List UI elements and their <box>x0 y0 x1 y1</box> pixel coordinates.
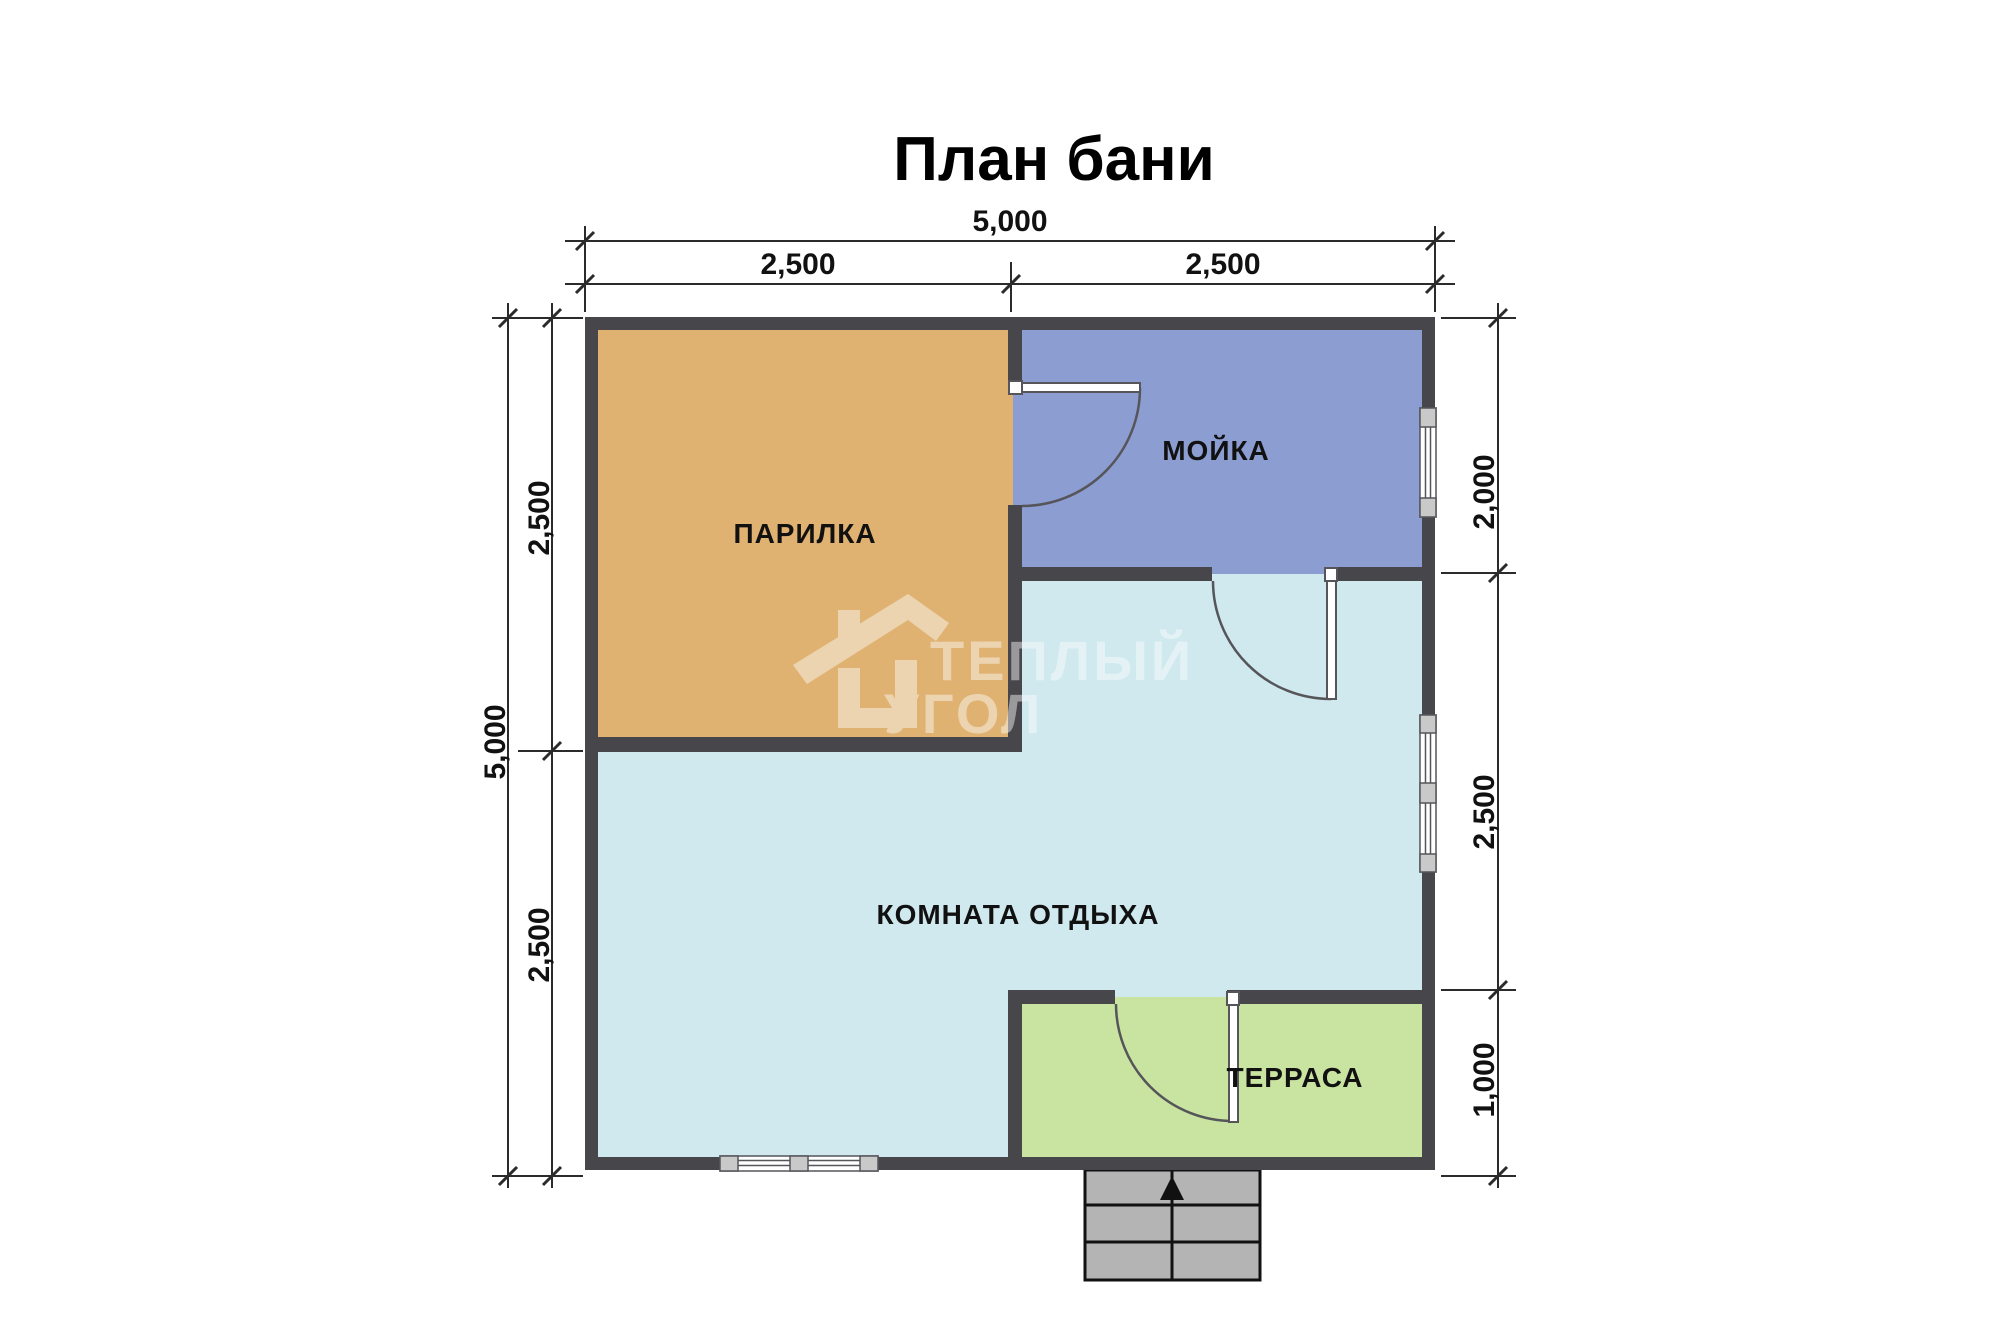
wall-moyka-bottom-right <box>1325 567 1422 581</box>
dim-label-top-total: 5,000 <box>972 205 1047 238</box>
door-frame <box>1227 992 1239 1005</box>
window-frame-block <box>1420 498 1436 517</box>
dim-label-right-upper: 2,000 <box>1468 454 1501 529</box>
room-label-komnata: КОМНАТА ОТДЫХА <box>876 899 1159 930</box>
wall-outer-top <box>585 317 1435 330</box>
door-frame <box>1325 568 1337 581</box>
wall-parilka-moyka-upper <box>1008 330 1022 382</box>
window-frame-block <box>720 1156 738 1171</box>
watermark-chimney <box>838 610 860 650</box>
room-label-terrasa: ТЕРРАСА <box>1227 1062 1364 1093</box>
wall-outer-bottom <box>585 1157 1435 1170</box>
wall-terrasa-top-left <box>1008 990 1115 1004</box>
dim-label-top-right: 2,500 <box>1185 248 1260 281</box>
dim-label-left-upper: 2,500 <box>523 480 556 555</box>
window-moyka-right <box>1420 408 1436 517</box>
dim-label-right-lower: 1,000 <box>1468 1042 1501 1117</box>
watermark-text-line2: УГОЛ <box>884 682 1043 745</box>
dim-label-left-total: 5,000 <box>479 704 512 779</box>
dim-label-left-lower: 2,500 <box>523 907 556 982</box>
wall-terrasa-left <box>1008 990 1022 1157</box>
wall-terrasa-top-right <box>1227 990 1422 1004</box>
entry-stairs <box>1085 1170 1260 1280</box>
floor-plan-drawing: План бани <box>0 0 2000 1333</box>
window-frame-block <box>1420 408 1436 427</box>
window-frame-block <box>1420 715 1436 733</box>
window-frame-block <box>1420 783 1436 803</box>
floor-plan-page: План бани <box>0 0 2000 1333</box>
door-frame <box>1009 381 1022 394</box>
window-frame-block <box>860 1156 878 1171</box>
page-title: План бани <box>893 125 1214 194</box>
window-frame-block <box>790 1156 808 1171</box>
room-label-moyka: МОЙКА <box>1162 434 1270 466</box>
wall-outer-left <box>585 317 598 1170</box>
window-frame-block <box>1420 854 1436 872</box>
wall-moyka-bottom-left <box>1008 567 1212 581</box>
window-komnata-right <box>1420 715 1436 872</box>
dim-label-top-left: 2,500 <box>760 248 835 281</box>
window-komnata-bottom <box>720 1156 878 1171</box>
dim-label-right-middle: 2,500 <box>1468 774 1501 849</box>
door-leaf <box>1022 383 1140 392</box>
room-label-parilka: ПАРИЛКА <box>733 518 876 549</box>
door-leaf <box>1327 581 1336 699</box>
